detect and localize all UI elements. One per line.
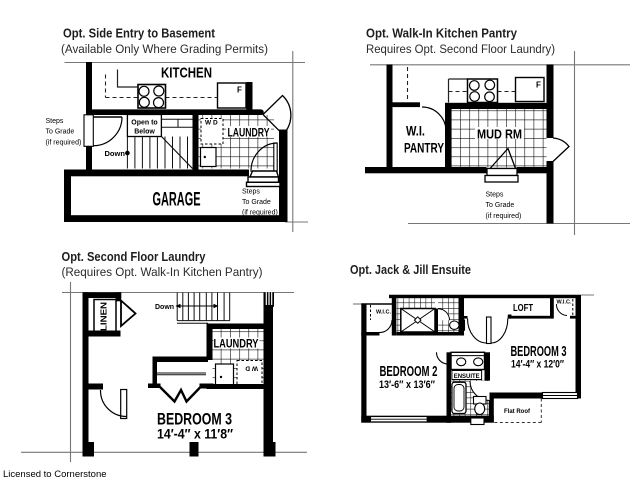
svg-text:W D: W D [245, 365, 258, 372]
svg-text:(Requires Opt. Walk-In Kitchen: (Requires Opt. Walk-In Kitchen Pantry) [62, 265, 263, 279]
svg-text:F: F [237, 86, 242, 95]
svg-text:W.I.C.: W.I.C. [376, 310, 391, 316]
svg-text:Flat Roof: Flat Roof [504, 409, 531, 415]
svg-text:Opt. Jack & Jill Ensuite: Opt. Jack & Jill Ensuite [350, 263, 471, 277]
svg-text:(Available Only Where Grading: (Available Only Where Grading Permits) [61, 42, 268, 56]
svg-text:14′-4″ x 12′0″: 14′-4″ x 12′0″ [511, 359, 565, 371]
svg-text:ENSUITE: ENSUITE [454, 373, 481, 380]
svg-text:14′-4″ x 11′8″: 14′-4″ x 11′8″ [157, 426, 233, 442]
svg-text:W.I.: W.I. [406, 124, 425, 139]
svg-text:W D: W D [205, 120, 218, 127]
svg-text:MUD RM: MUD RM [477, 127, 522, 142]
svg-text:Down: Down [155, 304, 174, 311]
svg-text:(if required): (if required) [242, 210, 278, 217]
svg-text:Open to: Open to [131, 120, 157, 127]
svg-text:KITCHEN: KITCHEN [161, 65, 212, 82]
svg-text:BEDROOM 2: BEDROOM 2 [380, 364, 438, 380]
svg-text:Opt. Second Floor Laundry: Opt. Second Floor Laundry [62, 250, 206, 264]
svg-text:Below: Below [134, 129, 155, 136]
svg-text:Steps: Steps [486, 192, 504, 199]
svg-text:W.I.C.: W.I.C. [557, 300, 572, 306]
svg-text:PANTRY: PANTRY [404, 141, 444, 156]
svg-text:13′-6″ x 13′6″: 13′-6″ x 13′6″ [379, 379, 436, 391]
svg-text:GARAGE: GARAGE [153, 190, 201, 211]
svg-text:To Grade: To Grade [242, 199, 271, 206]
svg-text:Steps: Steps [46, 118, 64, 125]
svg-text:LOFT: LOFT [513, 302, 533, 314]
svg-text:Licensed to Cornerstone: Licensed to Cornerstone [3, 469, 107, 480]
svg-text:To Grade: To Grade [46, 129, 75, 136]
svg-text:Opt. Side Entry to Basement: Opt. Side Entry to Basement [63, 27, 216, 41]
svg-text:LAUNDRY: LAUNDRY [214, 339, 259, 351]
svg-text:Steps: Steps [242, 189, 260, 196]
svg-text:LAUNDRY: LAUNDRY [228, 128, 270, 140]
svg-text:To Grade: To Grade [486, 202, 515, 209]
svg-text:Down: Down [105, 149, 126, 158]
svg-text:Opt. Walk-In Kitchen Pantry: Opt. Walk-In Kitchen Pantry [366, 27, 517, 41]
svg-text:(if required): (if required) [46, 140, 82, 147]
svg-text:(if required): (if required) [486, 213, 522, 220]
svg-text:LINEN: LINEN [100, 302, 109, 331]
svg-text:F: F [536, 81, 541, 90]
svg-text:Requires Opt. Second Floor Lau: Requires Opt. Second Floor Laundry) [366, 42, 555, 56]
